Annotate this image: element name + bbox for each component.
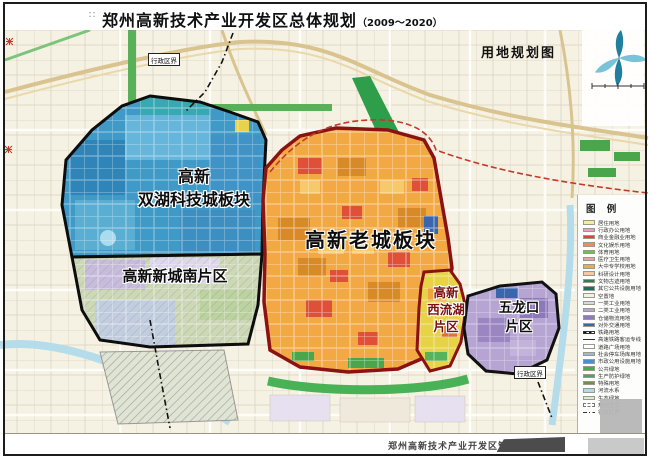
legend-swatch — [583, 242, 595, 247]
legend-swatch — [583, 286, 595, 291]
legend-swatch — [583, 235, 595, 240]
legend-item: 大中专学校用地 — [583, 263, 646, 270]
legend-item: 商业金融业用地 — [583, 234, 646, 241]
legend-swatch — [583, 331, 595, 334]
legend-item: 二类工业用地 — [583, 307, 646, 314]
legend-swatch — [583, 250, 595, 255]
legend-swatch — [583, 352, 595, 357]
region-label-wulongkou: 五龙口 片区 — [486, 299, 552, 337]
legend-swatch — [583, 315, 595, 320]
legend-item: 高速铁路客运专线 — [583, 336, 646, 343]
legend-swatch — [583, 293, 595, 298]
boundary-label-se: 行政区界 — [514, 366, 546, 379]
city-blocks — [270, 395, 465, 422]
legend-swatch — [583, 403, 595, 408]
legend-swatch — [583, 323, 595, 328]
legend-item-label: 其它公共设施用地 — [598, 284, 641, 292]
region-label-shuanghu: 高新 双湖科技城板块 — [116, 165, 272, 211]
title-years: （2009～2020） — [357, 18, 443, 29]
legend-item: 其它公共设施用地 — [583, 285, 646, 292]
decorative-mark: ∷ — [89, 10, 95, 21]
page-title: 郑州高新技术产业开发区总体规划（2009～2020） — [102, 7, 443, 31]
legend-swatch — [583, 228, 595, 233]
legend-panel: 图 例 居住用地行政办公用地商业金融业用地文化娱乐用地体育用地医疗卫生用地大中专… — [577, 195, 646, 433]
legend-item: 空置地 — [583, 292, 646, 299]
legend-swatch — [583, 279, 595, 284]
legend-items: 居住用地行政办公用地商业金融业用地文化娱乐用地体育用地医疗卫生用地大中专学校用地… — [578, 219, 646, 416]
legend-item-label: 商业金融业用地 — [598, 233, 636, 241]
compass-rose-icon — [582, 30, 647, 126]
watermark-box — [497, 437, 565, 452]
legend-item: 仓储物流用地 — [583, 314, 646, 321]
legend-swatch — [583, 396, 595, 401]
legend-item: 市政公用设施用地 — [583, 358, 646, 365]
region-label-laocheng: 高新老城板块 — [278, 224, 464, 253]
title-bar: ∷ 郑州高新技术产业开发区总体规划（2009～2020） — [5, 4, 645, 30]
region-label-xinchengnan: 高新新城南片区 — [93, 265, 257, 286]
legend-swatch — [583, 339, 595, 341]
legend-item-label: 大中专学校用地 — [598, 263, 636, 271]
legend-swatch — [583, 366, 595, 371]
legend-swatch — [583, 257, 595, 262]
watermark-box — [588, 438, 644, 454]
legend-swatch — [583, 308, 595, 313]
legend-item: 公共绿地 — [583, 365, 646, 372]
watermark-box — [600, 399, 642, 433]
legend-item-label: 二类工业用地 — [598, 306, 630, 314]
map-subtitle: 用地规划图 — [481, 42, 556, 61]
planning-map-page: ∷ 郑州高新技术产业开发区总体规划（2009～2020） 用地规划图 高新 双湖… — [0, 0, 650, 457]
hatched-area — [100, 350, 238, 424]
legend-swatch — [583, 359, 595, 364]
legend-swatch — [583, 412, 595, 414]
legend-swatch — [583, 344, 595, 349]
legend-item-label: 高速铁路客运专线 — [598, 336, 641, 344]
legend-swatch — [583, 264, 595, 269]
legend-swatch — [583, 374, 595, 379]
region-label-xiliuhu: 高新 西流湖 片区 — [417, 285, 475, 336]
boundary-label-nw: 行政区界 — [148, 53, 180, 66]
legend-swatch — [583, 388, 595, 393]
legend-swatch — [583, 301, 595, 306]
legend-item: 河流水系 — [583, 387, 646, 394]
legend-item: 文化娱乐用地 — [583, 241, 646, 248]
legend-swatch — [583, 271, 595, 276]
legend-swatch — [583, 381, 595, 386]
legend-title: 图 例 — [586, 201, 646, 215]
legend-swatch — [583, 220, 595, 225]
legend-item-label: 市政公用设施用地 — [598, 357, 641, 365]
